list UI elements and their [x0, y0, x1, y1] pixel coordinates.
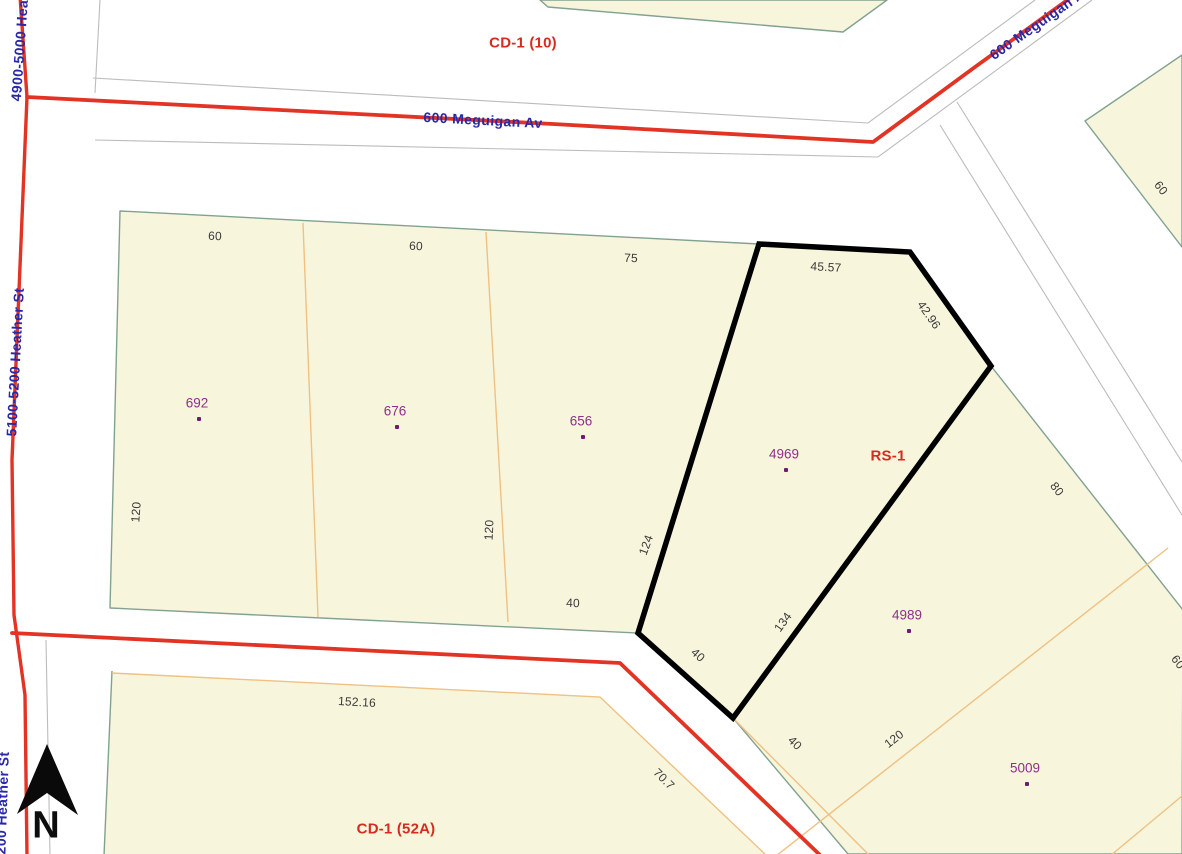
casing-meguigan-south: [95, 0, 1092, 157]
parcel-cd1-10-block[interactable]: [540, 0, 887, 32]
casing-meguigan-north: [93, 0, 1035, 123]
heather-st-centerline: [12, 0, 27, 854]
parcel-cd1-52a-block[interactable]: [104, 673, 767, 854]
parcel-northeast-corner[interactable]: [1085, 55, 1182, 247]
map-canvas[interactable]: [0, 0, 1182, 854]
north-arrow-n-label: N: [32, 805, 59, 848]
casing-heather-upper: [95, 0, 100, 93]
zoning-map[interactable]: 60607545.5742.9612012012440401344012070.…: [0, 0, 1182, 854]
meguigan-av-centerline: [27, 0, 1095, 142]
